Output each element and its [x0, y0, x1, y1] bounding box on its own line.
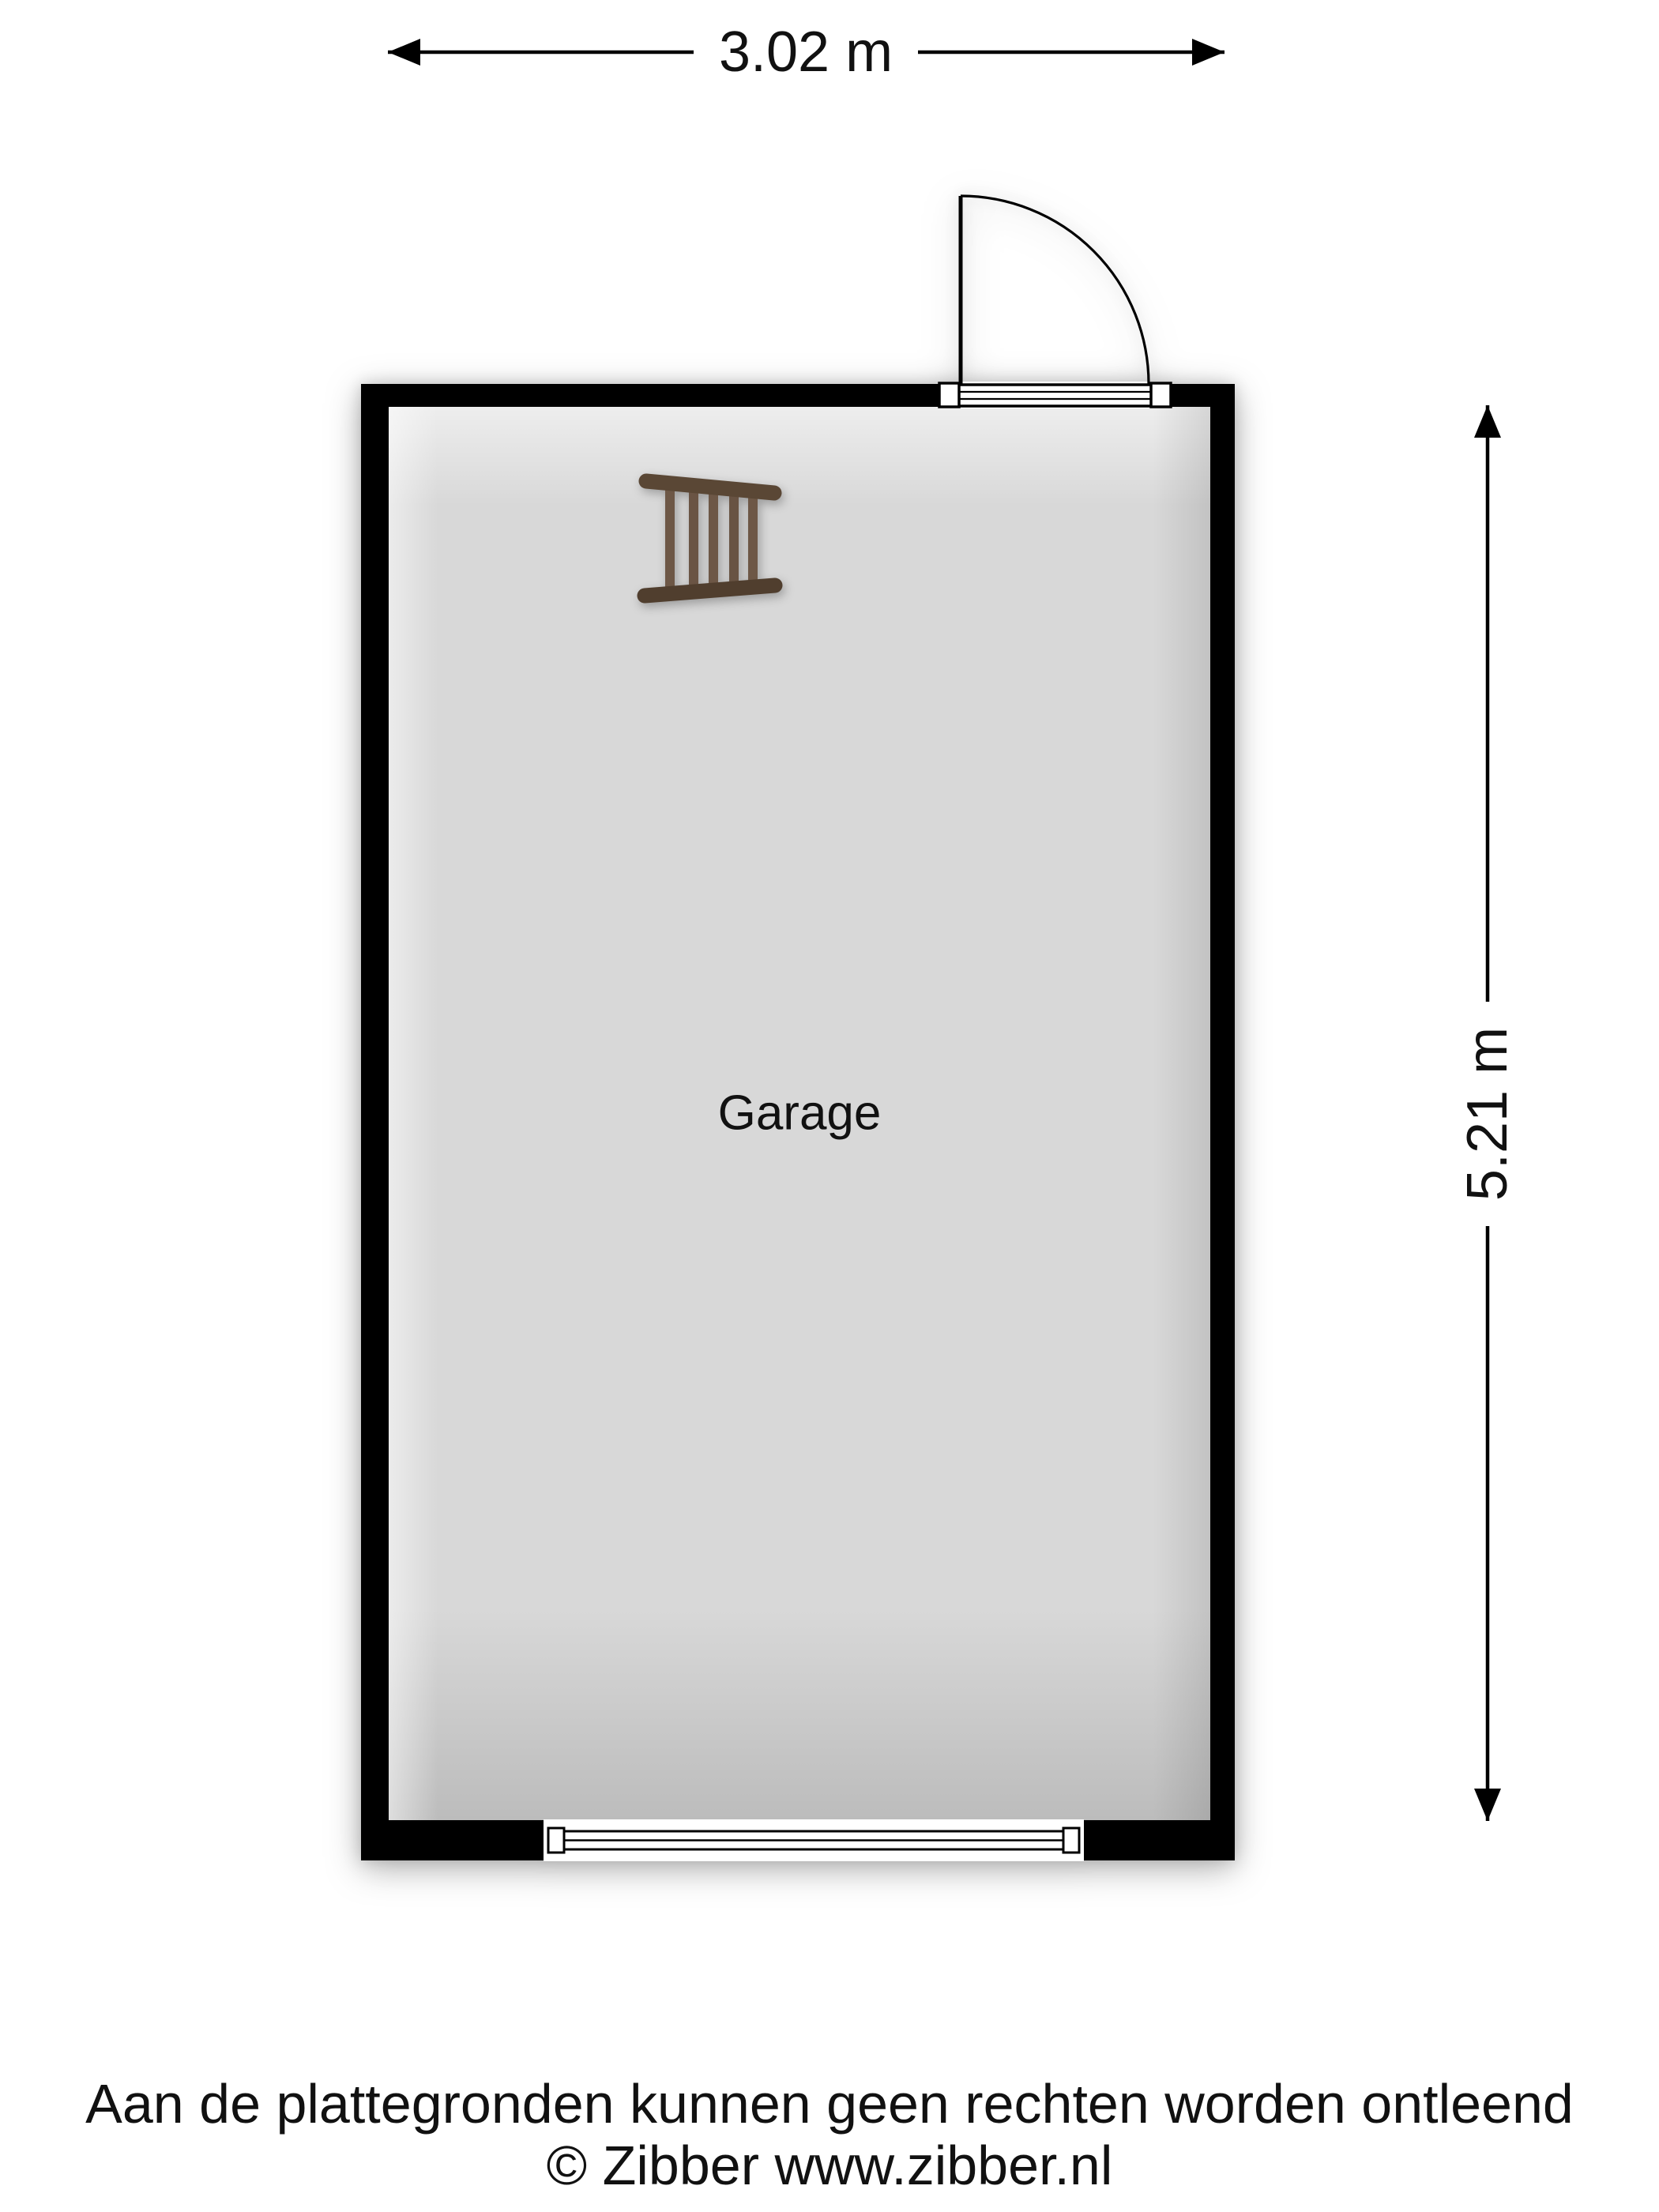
door-swing-arc: [961, 196, 1149, 384]
arrow-down-icon: [1474, 1789, 1501, 1821]
ladder-rail-bottom: [645, 585, 775, 596]
arrow-left-icon: [388, 39, 420, 66]
width-dimension-label: 3.02 m: [719, 21, 893, 84]
window: [544, 1819, 1084, 1861]
width-dimension: 3.02 m: [388, 21, 1224, 84]
arrow-right-icon: [1192, 39, 1224, 66]
window-cap-right: [1063, 1828, 1079, 1853]
door-jamb-left: [939, 383, 959, 407]
garage-room: [361, 196, 1235, 1861]
floorplan-page: 3.02 m 5.21 m Garage Aan de plattegronde…: [0, 0, 1659, 2212]
disclaimer-text: Aan de plattegronden kunnen geen rechten…: [85, 2073, 1574, 2135]
arrow-up-icon: [1474, 405, 1501, 438]
room-label: Garage: [718, 1086, 882, 1141]
height-dimension: 5.21 m: [1456, 405, 1519, 1821]
door-jamb-right: [1151, 383, 1171, 407]
copyright-text: © Zibber www.zibber.nl: [547, 2135, 1113, 2196]
floorplan-drawing: 3.02 m 5.21 m Garage Aan de plattegronde…: [0, 0, 1659, 2212]
door: [939, 196, 1171, 408]
door-threshold: [958, 385, 1152, 406]
window-cap-left: [548, 1828, 564, 1853]
height-dimension-label: 5.21 m: [1456, 1027, 1519, 1201]
